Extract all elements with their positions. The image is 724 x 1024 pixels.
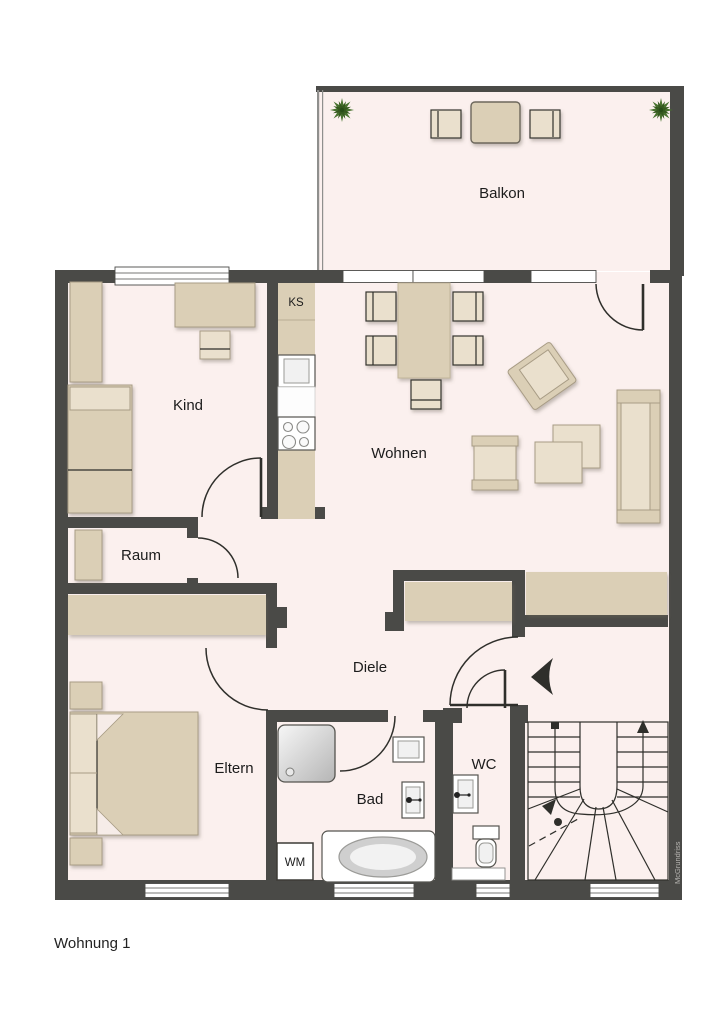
dining-table <box>398 283 450 378</box>
balcony-window-pane <box>343 271 413 283</box>
label-ks: KS <box>288 297 304 309</box>
sideboard-diele <box>405 582 512 621</box>
desk <box>175 283 255 327</box>
kind-window <box>115 267 229 285</box>
room-label-balkon: Balkon <box>479 185 525 202</box>
dining-chair <box>453 292 483 321</box>
dining-chair <box>411 380 441 409</box>
kitchen-worktop <box>278 387 315 417</box>
walk-line-start <box>551 722 559 729</box>
balcony-chair-right <box>530 110 560 138</box>
room-label-raum: Raum <box>121 547 161 564</box>
room-label-diele: Diele <box>353 659 387 676</box>
page-title: Wohnung 1 <box>54 935 130 952</box>
balcony-window-pane <box>531 271 596 283</box>
room-label-kind: Kind <box>173 397 203 414</box>
room-label-eltern: Eltern <box>214 760 253 777</box>
shower-drain <box>286 768 294 776</box>
sideboard-wohnen <box>526 572 667 615</box>
bed-eltern <box>70 712 198 835</box>
bad-window <box>334 884 414 898</box>
wardrobe-eltern <box>68 595 266 635</box>
side-table <box>535 442 582 483</box>
nightstand <box>70 682 102 709</box>
watermark-text: McGrundriss <box>673 841 682 884</box>
balcony-chair-left <box>431 110 461 138</box>
balcony-window-pane <box>413 271 484 283</box>
dining-chair <box>366 292 396 321</box>
bathtub <box>322 831 435 882</box>
toilet <box>473 826 499 867</box>
kitchen-strip <box>278 283 315 519</box>
dining-chair <box>453 336 483 365</box>
stair-window <box>590 884 659 898</box>
wc-sill <box>452 868 505 880</box>
eltern-window <box>145 884 229 898</box>
pillow <box>70 387 130 410</box>
wc-window <box>476 884 510 898</box>
nightstand <box>70 838 102 865</box>
dining-chair <box>366 336 396 365</box>
wardrobe <box>70 282 102 382</box>
room-label-wohnen: Wohnen <box>371 445 427 462</box>
sofa <box>617 390 660 523</box>
floor-plan-page: Balkon Kind Wohnen Raum Diele Eltern Bad… <box>0 0 724 1024</box>
balcony-table <box>471 102 520 143</box>
room-label-bad: Bad <box>357 791 384 808</box>
label-wm: WM <box>285 857 305 869</box>
armchair-small <box>472 436 518 490</box>
floor-plan-svg: Balkon Kind Wohnen Raum Diele Eltern Bad… <box>0 0 724 1024</box>
raum-cabinet <box>75 530 102 580</box>
room-label-wc: WC <box>472 756 497 773</box>
desk-chair <box>200 331 230 359</box>
